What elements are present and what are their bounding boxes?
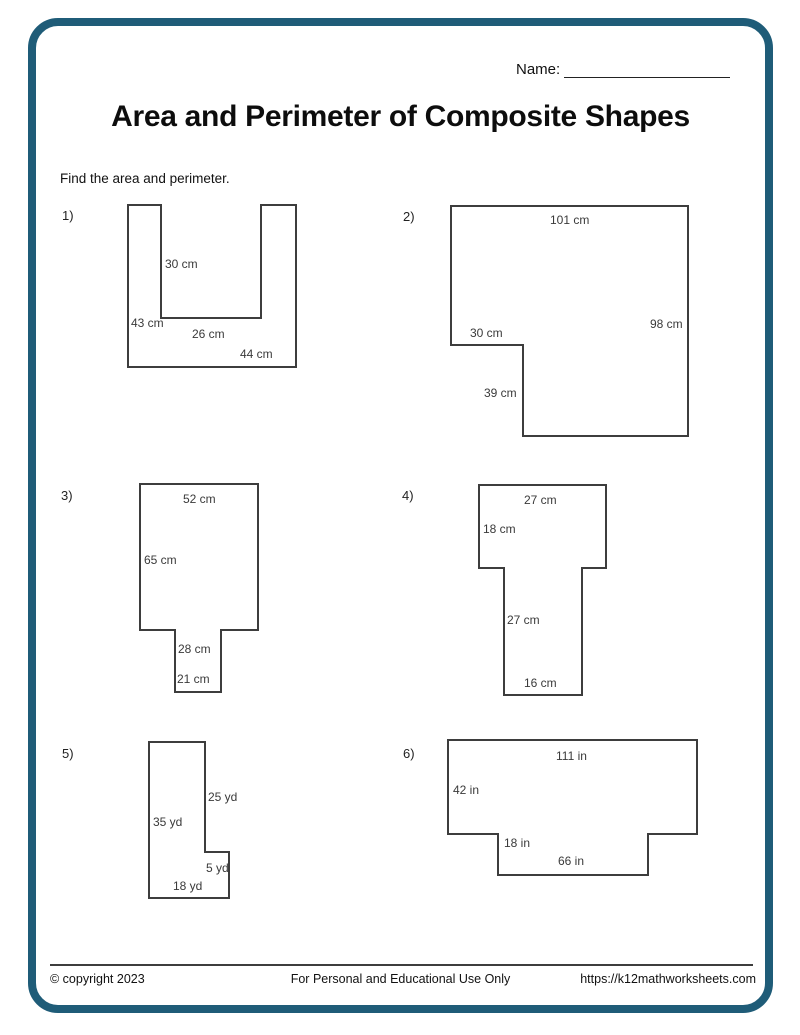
dimension-label: 44 cm (240, 347, 273, 361)
footer-divider (50, 964, 753, 966)
problem-1-number: 1) (62, 208, 74, 223)
problem-6-number: 6) (403, 746, 415, 761)
problem-4-number: 4) (402, 488, 414, 503)
dimension-label: 101 cm (550, 213, 589, 227)
dimension-label: 21 cm (177, 672, 210, 686)
shape-1-outline (128, 205, 296, 367)
dimension-label: 27 cm (524, 493, 557, 507)
dimension-label: 28 cm (178, 642, 211, 656)
problem-2-number: 2) (403, 209, 415, 224)
dimension-label: 43 cm (131, 316, 164, 330)
footer-url: https://k12mathworksheets.com (580, 972, 756, 986)
dimension-label: 18 cm (483, 522, 516, 536)
dimension-label: 30 cm (470, 326, 503, 340)
dimension-label: 16 cm (524, 676, 557, 690)
dimension-label: 65 cm (144, 553, 177, 567)
shape-4-outline (479, 485, 606, 695)
dimension-label: 42 in (453, 783, 479, 797)
dimension-label: 18 yd (173, 879, 202, 893)
dimension-label: 30 cm (165, 257, 198, 271)
dimension-label: 27 cm (507, 613, 540, 627)
dimension-label: 98 cm (650, 317, 683, 331)
shape-3-outline (140, 484, 258, 692)
dimension-label: 111 in (556, 749, 587, 763)
dimension-label: 52 cm (183, 492, 216, 506)
dimension-label: 35 yd (153, 815, 182, 829)
dimension-label: 66 in (558, 854, 584, 868)
dimension-label: 25 yd (208, 790, 237, 804)
problem-3-number: 3) (61, 488, 73, 503)
dimension-label: 26 cm (192, 327, 225, 341)
problem-5-number: 5) (62, 746, 74, 761)
dimension-label: 5 yd (206, 861, 229, 875)
dimension-label: 39 cm (484, 386, 517, 400)
shapes-canvas (0, 0, 800, 1035)
dimension-label: 18 in (504, 836, 530, 850)
